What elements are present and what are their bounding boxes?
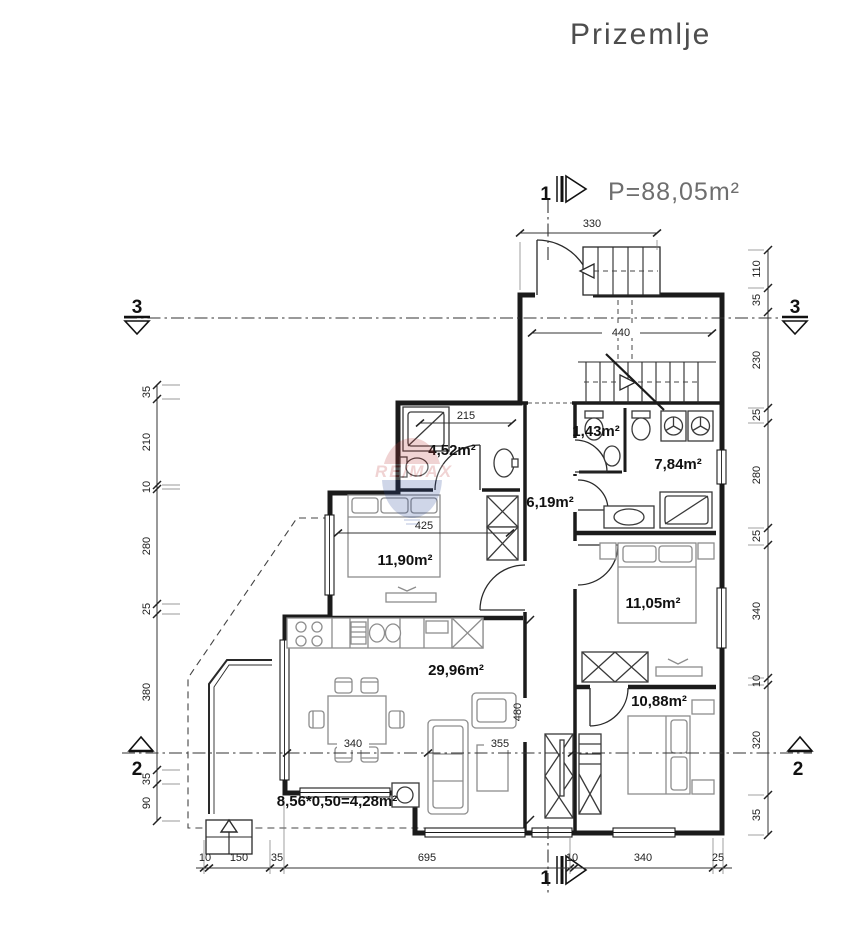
dining-chair bbox=[389, 711, 404, 728]
dim-left-3: 280 bbox=[141, 537, 153, 555]
furniture bbox=[287, 495, 714, 818]
section-1-marker-top: 1 bbox=[540, 176, 586, 205]
section-3-label: 3 bbox=[132, 297, 143, 318]
dim-left-1: 210 bbox=[141, 433, 153, 451]
section-3-label: 3 bbox=[790, 297, 801, 318]
terrace-sliding-door bbox=[425, 828, 525, 837]
dim-bottom-1: 150 bbox=[230, 852, 248, 864]
bedroom1-door bbox=[480, 561, 530, 612]
dim-right-1: 35 bbox=[751, 294, 763, 306]
terrace-railing-inner bbox=[214, 665, 272, 814]
coffee-table bbox=[477, 745, 508, 791]
section-1-marker-bottom: 1 bbox=[540, 856, 586, 889]
dim-left-0: 35 bbox=[141, 386, 153, 398]
window-living-west bbox=[280, 640, 289, 780]
room-label-bedroom2: 11,05m² bbox=[625, 595, 680, 612]
sink-basin-icon bbox=[386, 624, 401, 642]
section-3-marker-right: 3 bbox=[782, 297, 808, 334]
terrace-railing bbox=[209, 660, 272, 814]
dim-right-0: 110 bbox=[751, 260, 763, 278]
drawing-title: Prizemlje bbox=[570, 18, 711, 51]
room-label-bedroom3: 10,88m² bbox=[631, 693, 687, 710]
window-bedroom3-south bbox=[613, 828, 675, 837]
dining-chair bbox=[361, 678, 378, 693]
dining-chair bbox=[309, 711, 324, 728]
title-block: Prizemlje P=88,05m² bbox=[570, 18, 740, 206]
drainer bbox=[351, 622, 366, 644]
dim-living-b-value: 355 bbox=[491, 738, 509, 750]
section-2-label: 2 bbox=[793, 759, 804, 780]
bedroom3-furniture bbox=[628, 700, 714, 794]
bedroom3-door bbox=[590, 688, 628, 726]
dim-left-5: 380 bbox=[141, 683, 153, 701]
section-1-label: 1 bbox=[540, 868, 551, 889]
dim-bottom-5: 340 bbox=[634, 852, 652, 864]
dim-right-2: 230 bbox=[751, 351, 763, 369]
dim-hall-height: 480 bbox=[512, 616, 534, 824]
dim-right-8: 320 bbox=[751, 731, 763, 749]
toilet-icon bbox=[632, 418, 650, 440]
dim-right-5: 25 bbox=[751, 530, 763, 542]
bedroom3-wardrobe bbox=[579, 734, 601, 814]
room-label-hallway: 6,19m² bbox=[526, 494, 574, 511]
hall-entrance-door bbox=[532, 828, 572, 837]
toilet-tank bbox=[585, 411, 603, 418]
dim-hall-height-value: 480 bbox=[512, 703, 524, 721]
section-arrow-icon bbox=[125, 321, 149, 334]
terrace-area-label: 8,56*0,50=4,28m² bbox=[277, 793, 398, 810]
sink-basin-icon bbox=[370, 624, 385, 642]
dim-top-value: 330 bbox=[583, 218, 601, 230]
section-3-marker-left: 3 bbox=[124, 297, 150, 334]
stove-burner-icon bbox=[296, 622, 306, 632]
room-label-bathroom2: 7,84m² bbox=[654, 456, 702, 473]
dim-stairwell: 440 bbox=[528, 325, 716, 339]
floor-plan-drawing: 3 3 2 2 1 1 bbox=[0, 0, 846, 942]
dim-chain-left: 35 210 10 280 25 380 35 90 bbox=[141, 381, 180, 825]
dim-right-7: 10 bbox=[751, 675, 763, 687]
stove-burner-icon bbox=[312, 622, 322, 632]
exterior-entry-steps bbox=[580, 247, 660, 295]
interior-staircase bbox=[578, 300, 716, 410]
stove-burner-icon bbox=[312, 636, 322, 646]
dim-right-6: 340 bbox=[751, 602, 763, 620]
exterior-steps-bottom bbox=[206, 820, 252, 854]
dim-left-6: 35 bbox=[141, 773, 153, 785]
floor-plan-page: 3 3 2 2 1 1 bbox=[0, 0, 846, 942]
bedroom2-wardrobe bbox=[582, 652, 648, 682]
washbasin-icon bbox=[614, 509, 644, 525]
dim-stairwell-value: 440 bbox=[612, 327, 630, 339]
section-arrow-icon bbox=[783, 321, 807, 334]
section-arrow-icon bbox=[129, 737, 153, 751]
kitchen-counter bbox=[287, 618, 483, 648]
washbasin-icon bbox=[604, 446, 620, 466]
dining-table bbox=[328, 696, 386, 744]
dim-bottom-3: 695 bbox=[418, 852, 436, 864]
wc-door bbox=[571, 438, 607, 474]
dim-bedroom1-value: 425 bbox=[415, 520, 433, 532]
dining-chair bbox=[335, 678, 352, 693]
dim-bottom-4: 10 bbox=[566, 852, 578, 864]
bathroom2-door bbox=[571, 478, 608, 512]
window-bedroom2-east bbox=[717, 588, 726, 648]
dim-left-7: 90 bbox=[141, 797, 153, 809]
toilet-tank bbox=[632, 411, 650, 418]
room-label-wc: 1,43m² bbox=[572, 423, 620, 440]
bedroom1-wardrobe bbox=[487, 496, 518, 560]
hall-wardrobe bbox=[545, 734, 573, 818]
watermark-text: RE/MAX bbox=[375, 462, 453, 481]
dim-bottom-0: 10 bbox=[199, 852, 211, 864]
window-bedroom1-west bbox=[325, 515, 334, 595]
total-area-label: P=88,05m² bbox=[608, 178, 740, 206]
washbasin-icon bbox=[494, 449, 514, 477]
dim-right-3: 25 bbox=[751, 409, 763, 421]
section-2-marker-right: 2 bbox=[788, 737, 812, 780]
stairwell bbox=[578, 247, 716, 410]
dim-bottom-2: 35 bbox=[271, 852, 283, 864]
room-label-living: 29,96m² bbox=[428, 662, 484, 679]
dim-left-4: 25 bbox=[141, 603, 153, 615]
dim-left-2: 10 bbox=[141, 481, 153, 493]
section-arrow-icon bbox=[566, 176, 586, 202]
window-bath2-east bbox=[717, 450, 726, 484]
room-label-bedroom1: 11,90m² bbox=[377, 552, 432, 569]
stove-burner-icon bbox=[296, 636, 306, 646]
dim-chain-right: 110 35 230 25 280 25 340 10 320 35 bbox=[748, 246, 772, 839]
section-arrow-icon bbox=[788, 737, 812, 751]
dim-right-4: 280 bbox=[751, 466, 763, 484]
dim-bottom-6: 25 bbox=[712, 852, 724, 864]
dim-bathroom-value: 215 bbox=[457, 410, 475, 422]
dim-living-a-value: 340 bbox=[344, 738, 362, 750]
section-1-label: 1 bbox=[540, 184, 551, 205]
dim-right-9: 35 bbox=[751, 809, 763, 821]
